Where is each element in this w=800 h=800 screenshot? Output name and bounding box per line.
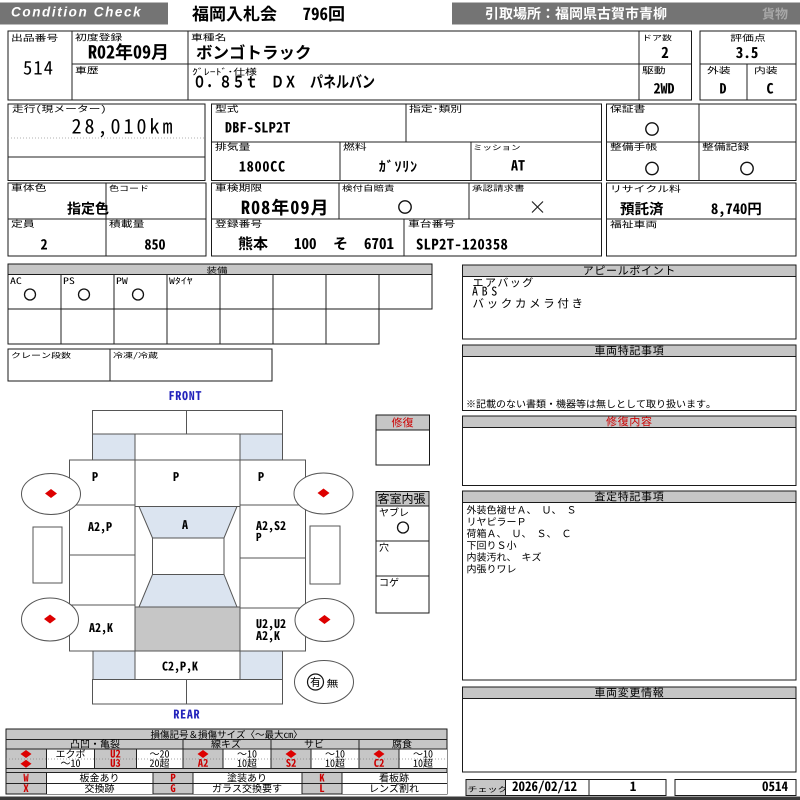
svg-text:Condition Check: Condition Check bbox=[11, 5, 142, 20]
